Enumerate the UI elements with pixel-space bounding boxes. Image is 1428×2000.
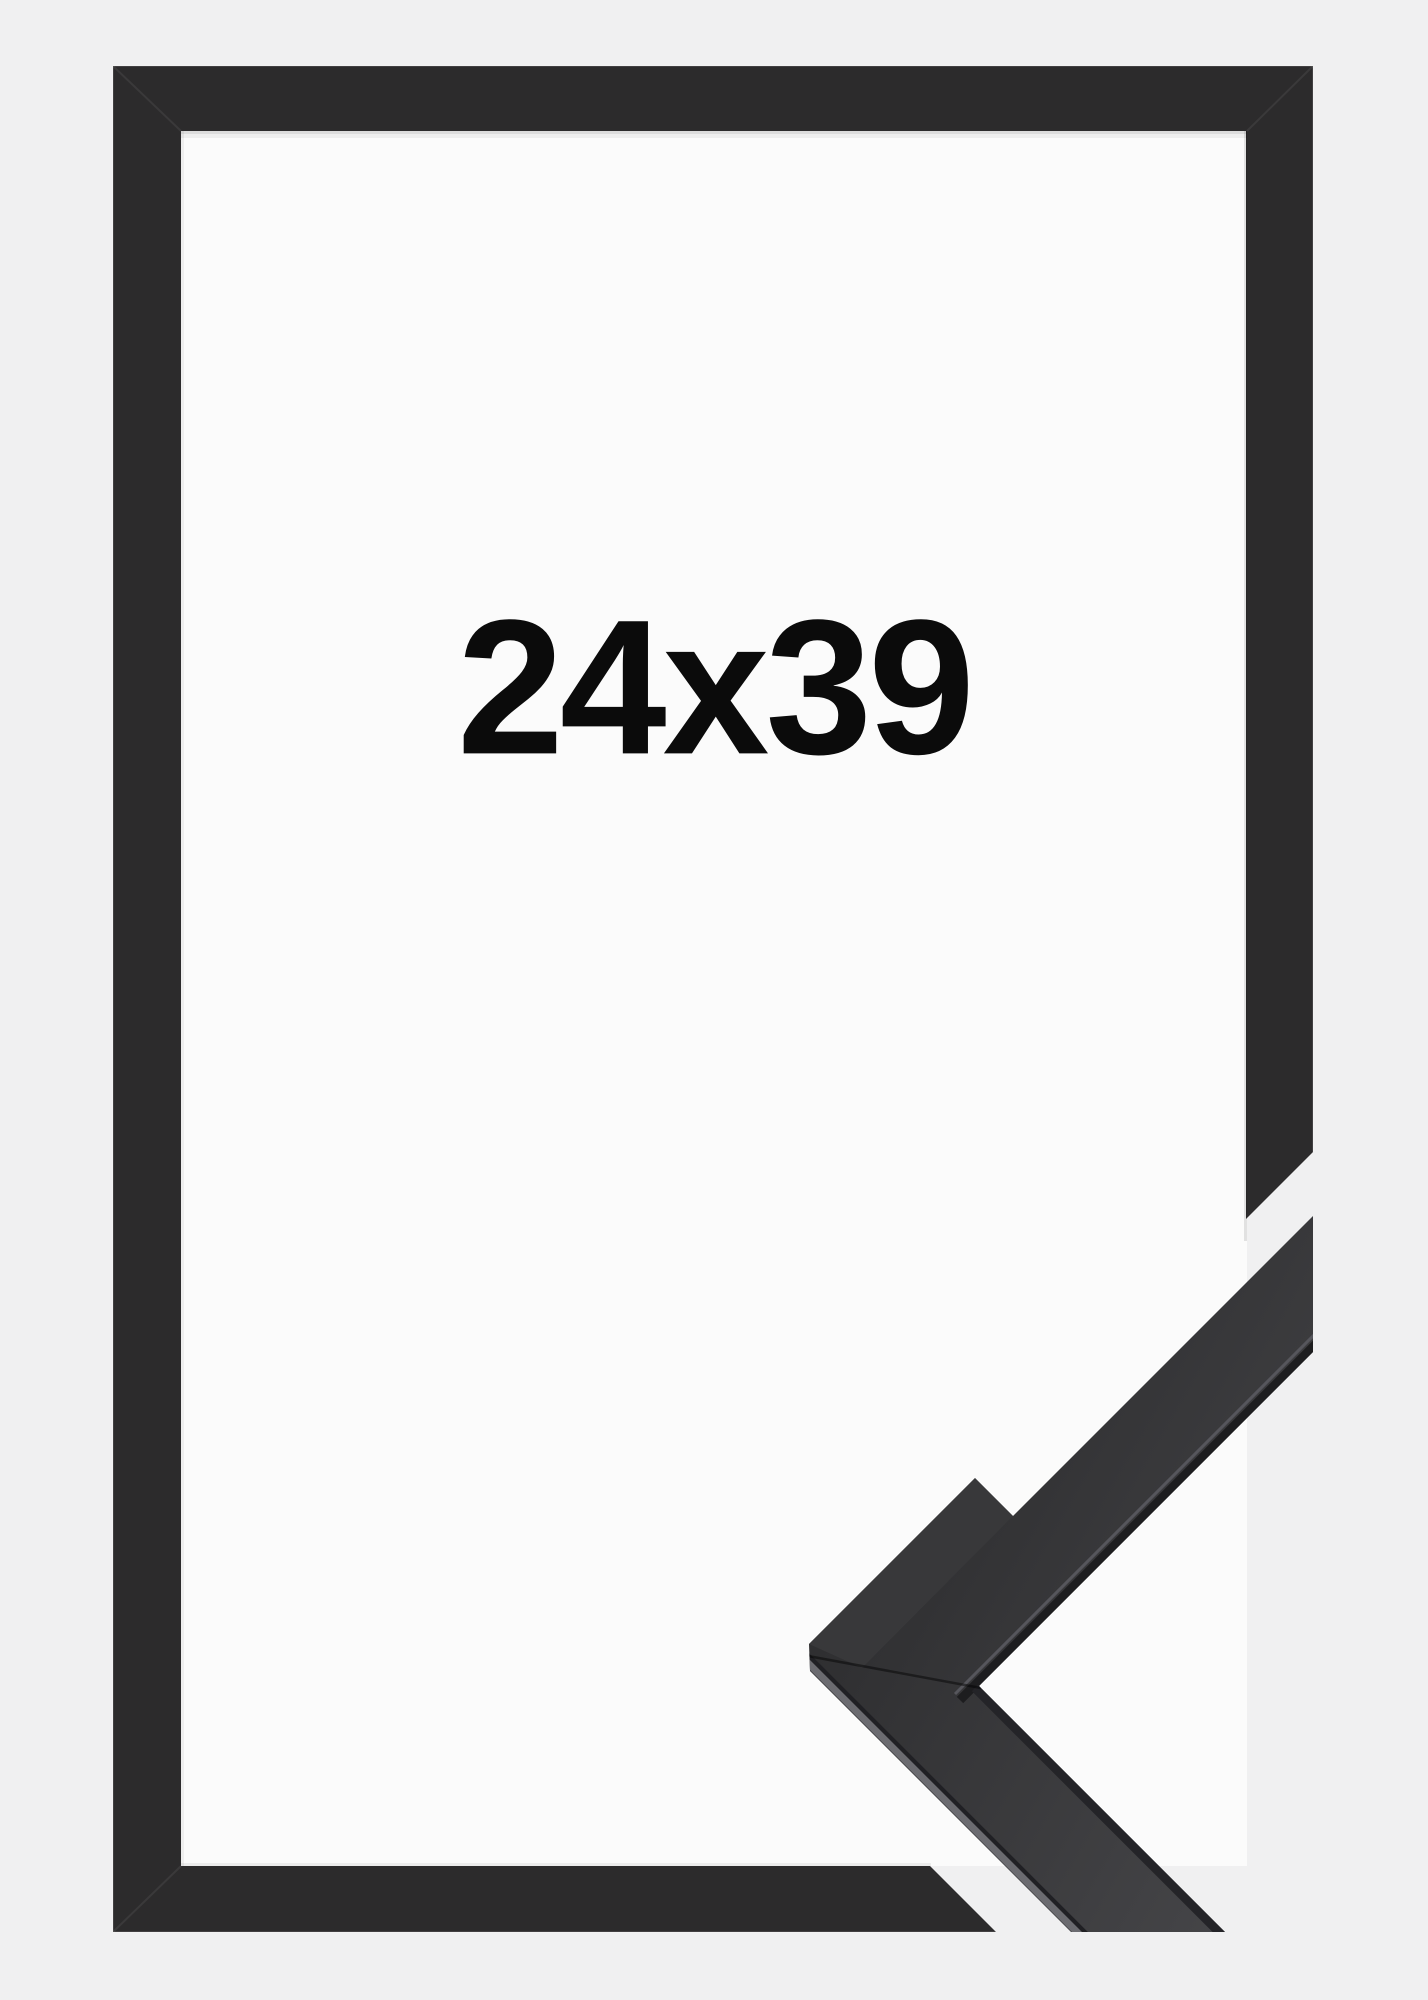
picture-frame-photo [0, 0, 1428, 2000]
frame-top-bar [113, 66, 1313, 131]
frame-size-label: 24x39 [457, 591, 971, 783]
frame-left-bar [113, 66, 181, 1932]
frame-opening [181, 131, 1247, 1866]
frame-bottom-bar [113, 1866, 996, 1932]
frame-right-bar [1246, 66, 1313, 1219]
product-image: 24x39 [0, 0, 1428, 2000]
